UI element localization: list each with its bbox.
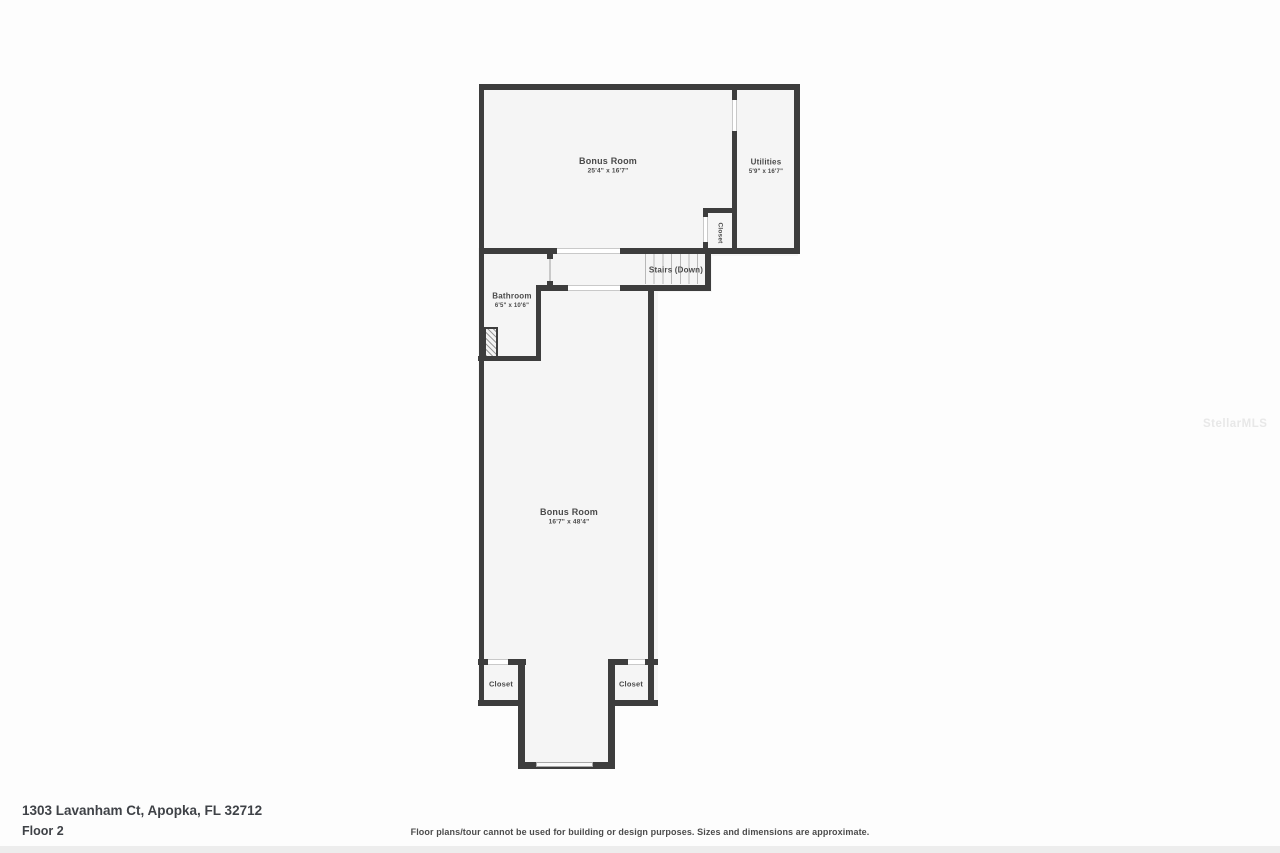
room-label-bathroom: Bathroom bbox=[492, 292, 531, 301]
room-dims-bathroom: 6'5" x 10'6" bbox=[495, 303, 529, 309]
wall-bath-door-stub-top bbox=[547, 251, 553, 259]
wall-bathroom-right bbox=[536, 287, 541, 361]
door-closet-right bbox=[628, 659, 645, 665]
wall-right-outer-top bbox=[794, 84, 800, 254]
bathroom-shaft-hatch bbox=[484, 327, 498, 358]
wall-top-section-bottom bbox=[480, 248, 798, 254]
room-label-closet-right: Closet bbox=[619, 680, 643, 689]
wall-closet-top-left-stub-a bbox=[703, 208, 708, 217]
floor-plan-page: Bonus Room 25'4" x 16'7" Utilities 5'9" … bbox=[0, 0, 1280, 853]
door-utilities bbox=[732, 100, 737, 131]
wall-bonus-bottom-right bbox=[648, 285, 654, 706]
room-label-bonus-bottom: Bonus Room bbox=[540, 507, 598, 517]
opening-landing-to-bottom-bonus bbox=[568, 285, 620, 291]
room-dims-bonus-top: 25'4" x 16'7" bbox=[588, 168, 629, 175]
opening-landing-to-top-bonus bbox=[557, 248, 620, 254]
wall-extension-right bbox=[608, 659, 615, 769]
room-fill-extension bbox=[518, 659, 615, 769]
door-closet-left bbox=[488, 659, 508, 665]
room-label-closet-left: Closet bbox=[489, 680, 513, 689]
stellar-mls-watermark: StellarMLS bbox=[1203, 418, 1267, 430]
disclaimer-text: Floor plans/tour cannot be used for buil… bbox=[340, 827, 940, 837]
room-dims-utilities: 5'9" x 16'7" bbox=[749, 169, 783, 175]
wall-bath-door-stub-bottom bbox=[547, 281, 553, 291]
wall-landing-bottom-east bbox=[620, 285, 711, 291]
wall-utilities-divider bbox=[732, 131, 737, 248]
wall-utilities-divider-stub bbox=[732, 90, 737, 100]
window bbox=[536, 762, 593, 767]
room-dims-bonus-bottom: 16'7" x 48'4" bbox=[549, 519, 590, 526]
floor-label: Floor 2 bbox=[22, 824, 64, 838]
door-closet-top bbox=[703, 217, 708, 242]
room-label-utilities: Utilities bbox=[751, 158, 782, 167]
room-label-bonus-top: Bonus Room bbox=[579, 156, 637, 166]
room-label-stairs: Stairs (Down) bbox=[649, 266, 703, 275]
door-bathroom bbox=[549, 259, 551, 281]
wall-left-outer bbox=[479, 84, 484, 706]
room-label-closet-top: Closet bbox=[717, 222, 724, 243]
room-fill-bonus-bottom bbox=[478, 285, 658, 706]
bottom-strip bbox=[0, 846, 1280, 853]
wall-top-outer bbox=[480, 84, 798, 90]
wall-extension-left bbox=[518, 659, 525, 769]
address-text: 1303 Lavanham Ct, Apopka, FL 32712 bbox=[22, 803, 262, 818]
